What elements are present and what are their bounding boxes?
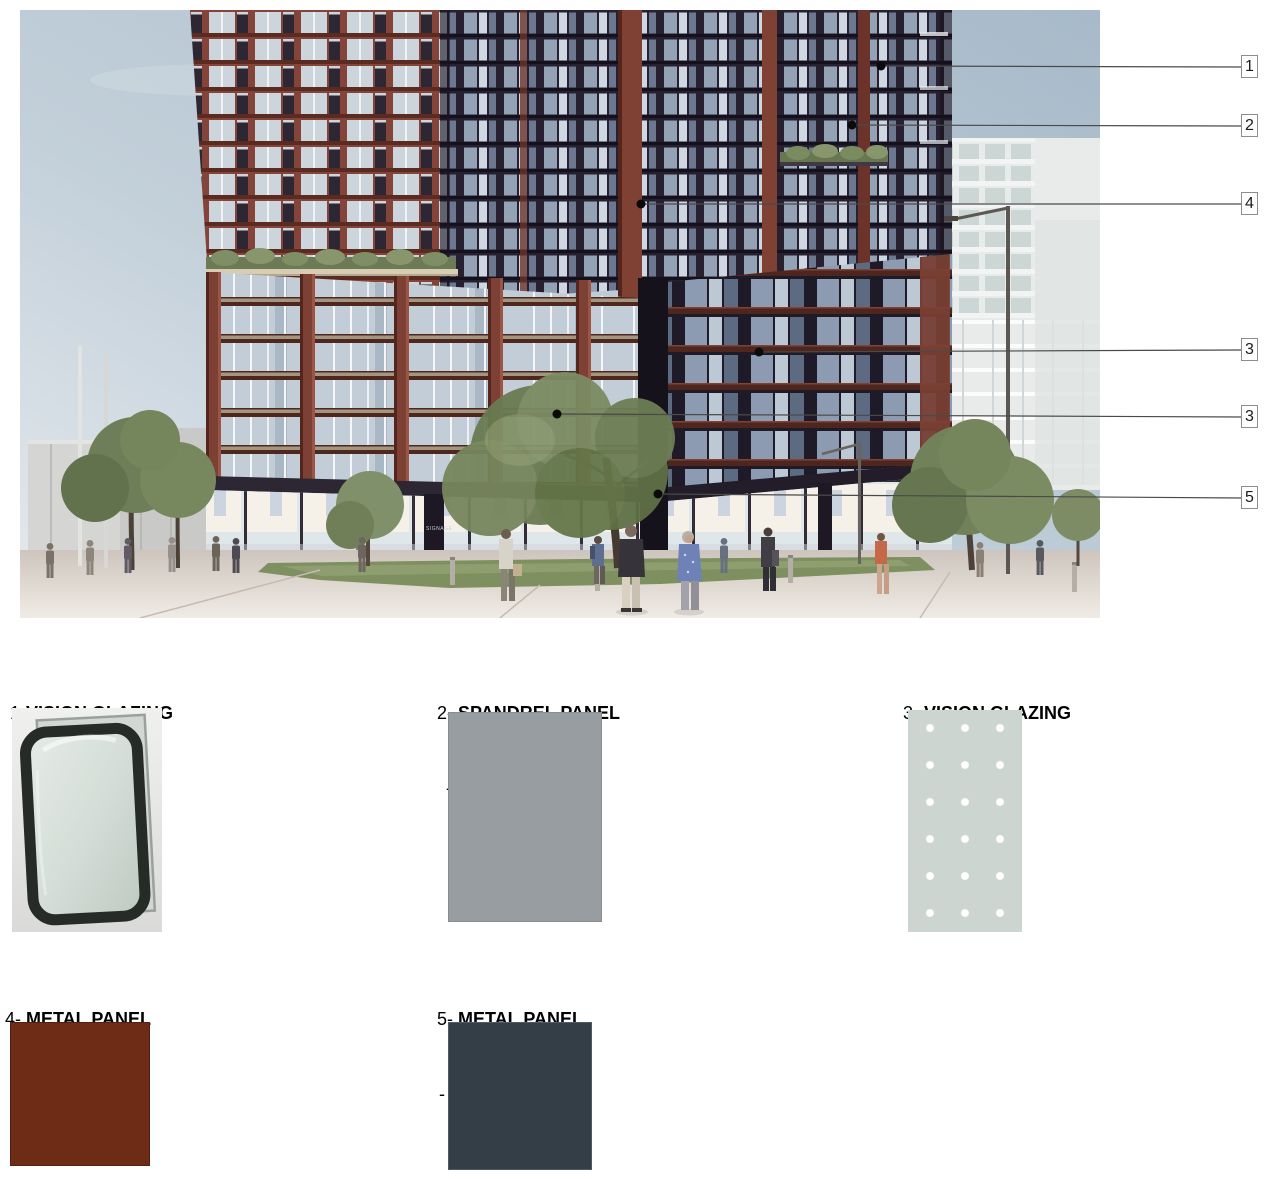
swatch-metal-panel-light: [10, 1022, 150, 1166]
building-rendering: SIGNAGE: [20, 10, 1100, 618]
swatch-spandrel-panel-light: [448, 712, 602, 922]
swatch-metal-panel-dark: [448, 1022, 592, 1170]
swatch-vision-glazing-fritt: [908, 710, 1022, 932]
callout-3a: 3: [1241, 338, 1258, 361]
callout-3b: 3: [1241, 405, 1258, 428]
swatch-vision-glazing-clear: [12, 708, 162, 932]
callout-5: 5: [1241, 486, 1258, 509]
tower: [190, 10, 952, 302]
signage-text: SIGNAGE: [426, 526, 452, 532]
glass-unit-photo: [24, 715, 155, 921]
materials-key-page: SIGNAGE: [0, 0, 1280, 1179]
callout-2: 2: [1241, 114, 1258, 137]
callout-1: 1: [1241, 55, 1258, 78]
callout-4: 4: [1241, 192, 1258, 215]
